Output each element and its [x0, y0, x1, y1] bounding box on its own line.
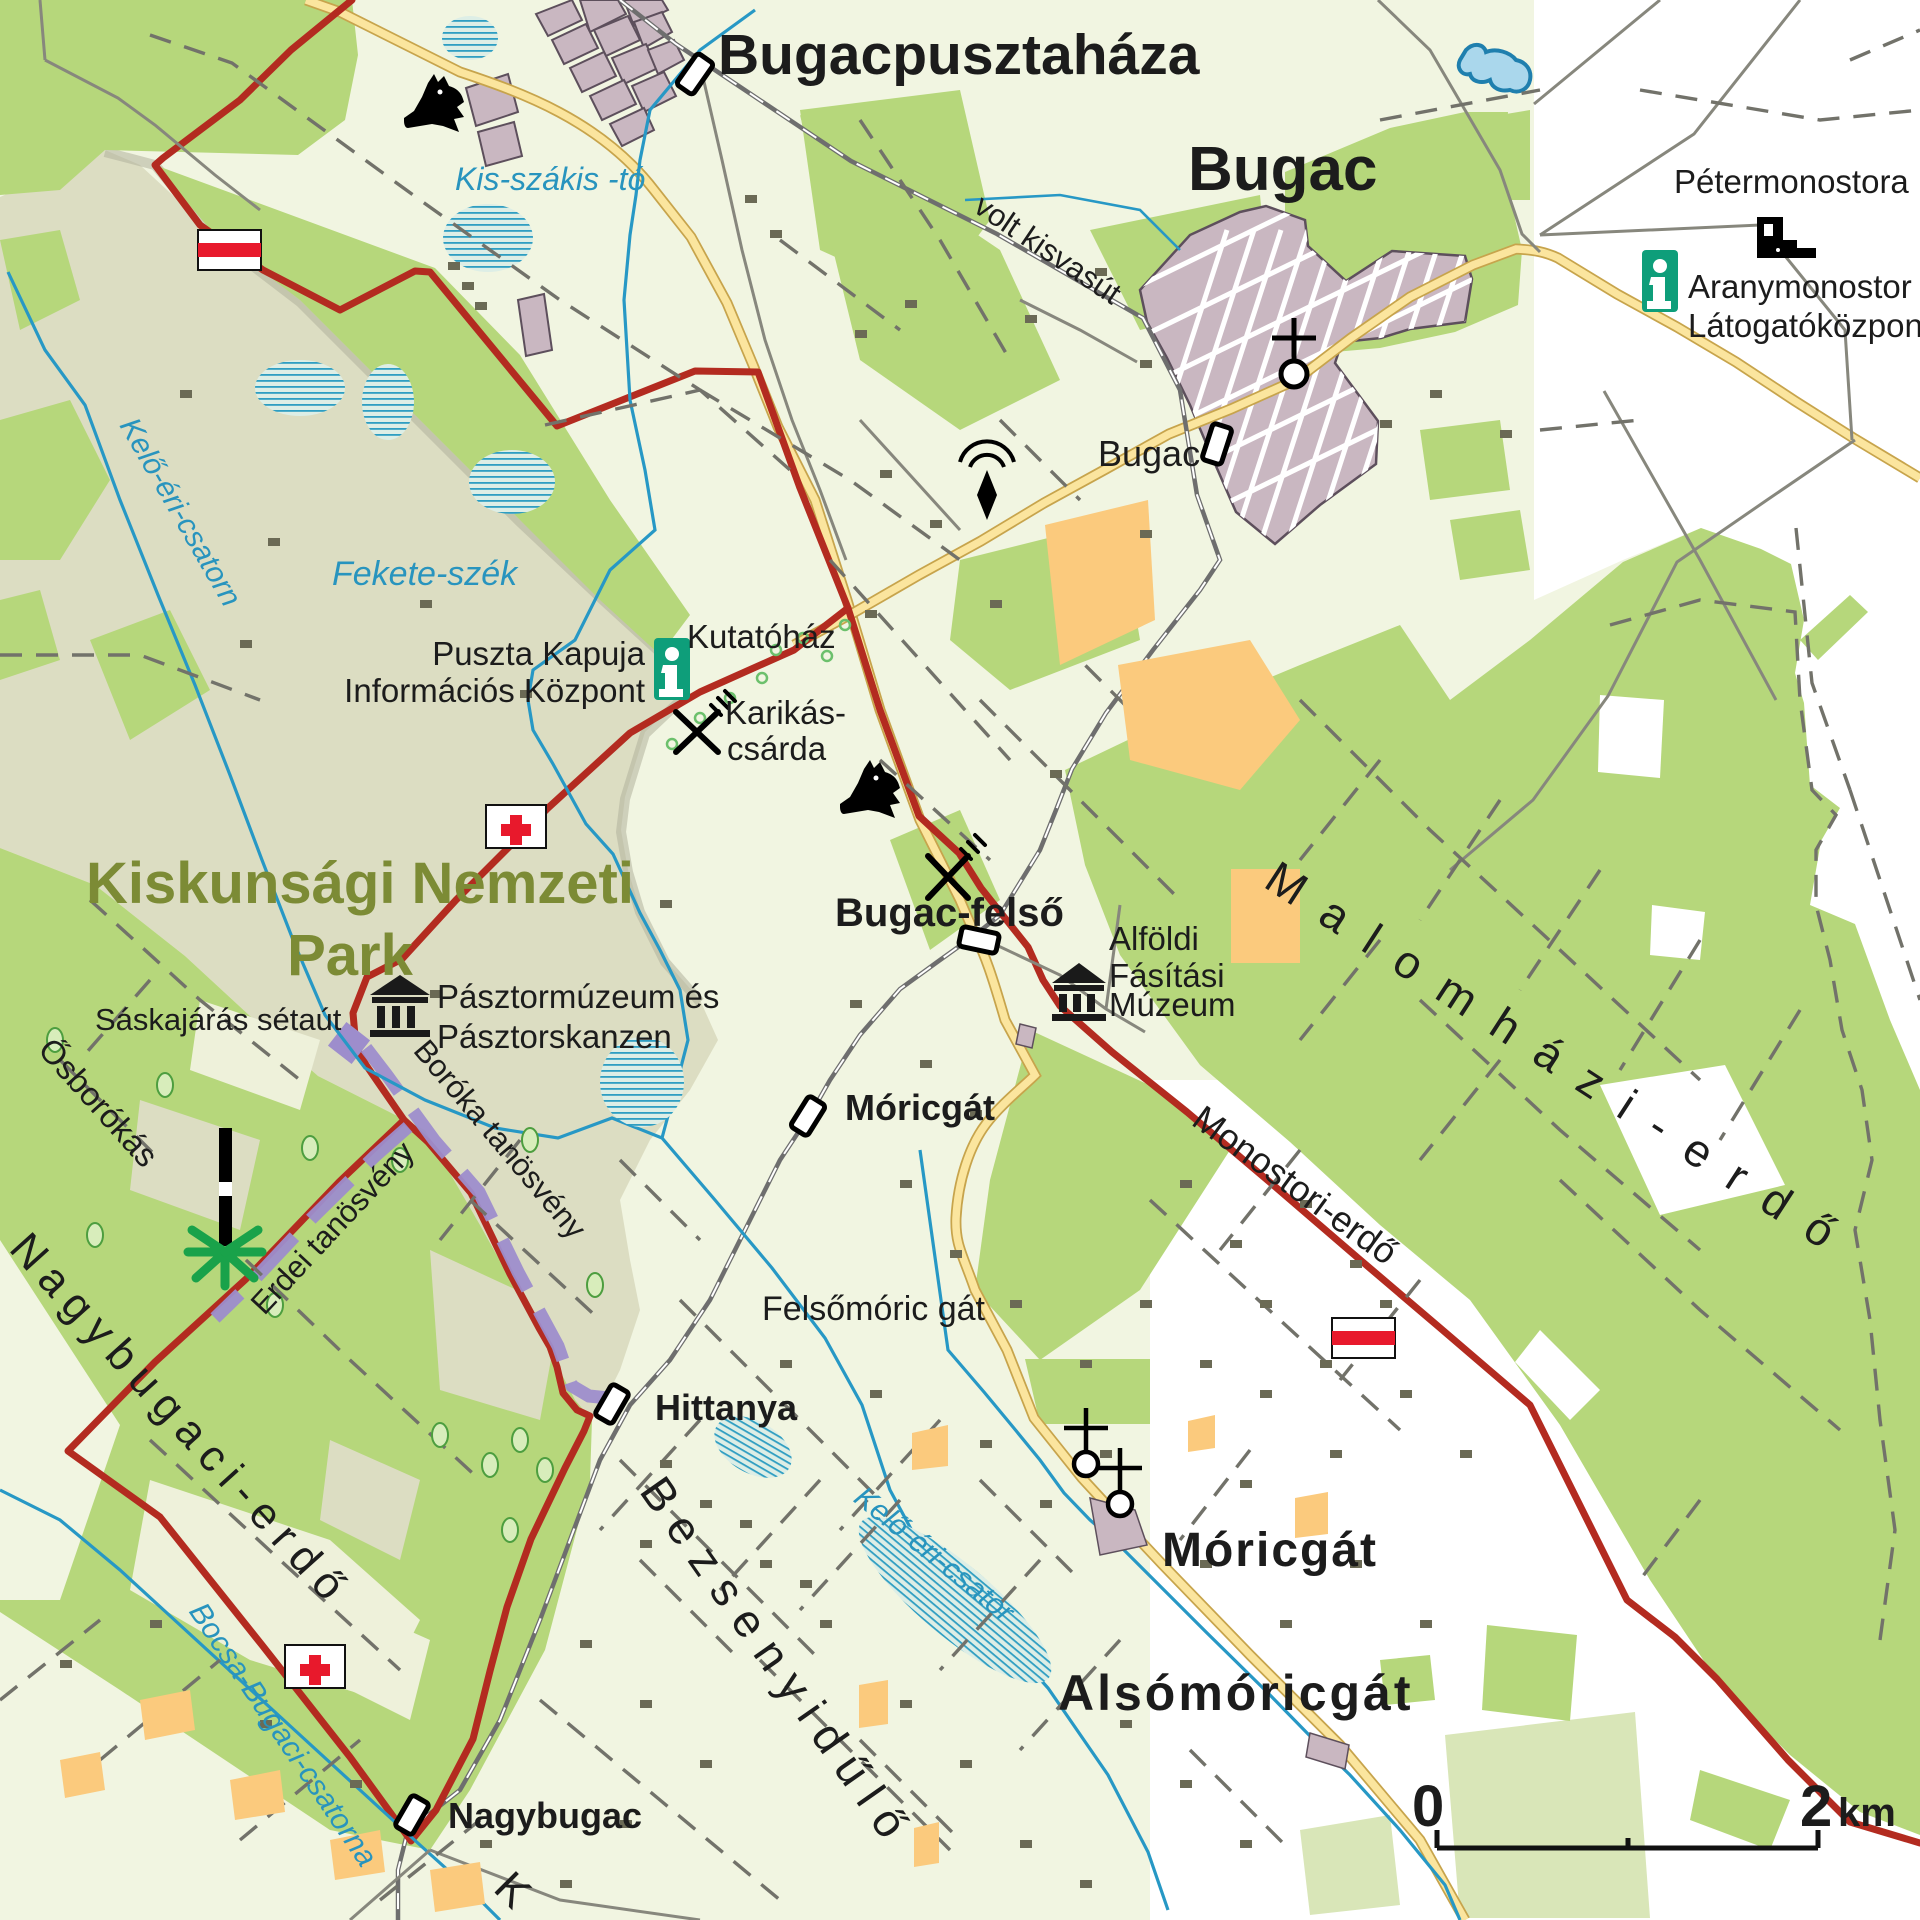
svg-text:Bugac-felső: Bugac-felső	[835, 891, 1064, 935]
svg-text:Sáskajárás sétaút: Sáskajárás sétaút	[95, 1002, 342, 1037]
svg-text:Karikás-: Karikás-	[725, 694, 846, 731]
svg-text:Hittanya: Hittanya	[655, 1387, 798, 1428]
svg-text:Felsőmóric gát: Felsőmóric gát	[762, 1290, 986, 1328]
svg-text:Puszta Kapuja: Puszta Kapuja	[432, 635, 645, 672]
svg-text:0: 0	[1412, 1774, 1444, 1839]
svg-text:Pásztormúzeum és: Pásztormúzeum és	[437, 978, 719, 1015]
svg-text:Móricgát: Móricgát	[1162, 1524, 1378, 1577]
svg-text:Alföldi: Alföldi	[1109, 920, 1199, 957]
svg-text:2: 2	[1800, 1774, 1832, 1839]
svg-text:Látogatóközpont: Látogatóközpont	[1688, 307, 1920, 344]
svg-text:Móricgát: Móricgát	[845, 1087, 995, 1128]
svg-text:Múzeum: Múzeum	[1109, 986, 1236, 1023]
svg-text:Kutatóház: Kutatóház	[687, 618, 836, 655]
svg-text:Pétermonostora: Pétermonostora	[1674, 163, 1909, 200]
svg-text:Bugacpusztaháza: Bugacpusztaháza	[718, 23, 1201, 87]
svg-text:km: km	[1838, 1791, 1896, 1835]
svg-text:Alsómóricgát: Alsómóricgát	[1058, 1665, 1414, 1721]
svg-text:Nagybugac: Nagybugac	[448, 1795, 642, 1836]
svg-text:Kiskunsági Nemzeti: Kiskunsági Nemzeti	[86, 851, 634, 916]
svg-text:Park: Park	[287, 923, 414, 988]
svg-text:Információs Központ: Információs Központ	[344, 672, 645, 709]
svg-text:Aranymonostor: Aranymonostor	[1688, 268, 1912, 305]
svg-text:csárda: csárda	[727, 730, 827, 767]
svg-text:Bugac: Bugac	[1098, 433, 1200, 474]
svg-text:Pásztorskanzen: Pásztorskanzen	[437, 1018, 672, 1055]
svg-text:Kis-szákis -tó: Kis-szákis -tó	[455, 161, 645, 197]
svg-text:Fekete-szék: Fekete-szék	[332, 555, 519, 593]
svg-text:Bugac: Bugac	[1188, 135, 1377, 204]
